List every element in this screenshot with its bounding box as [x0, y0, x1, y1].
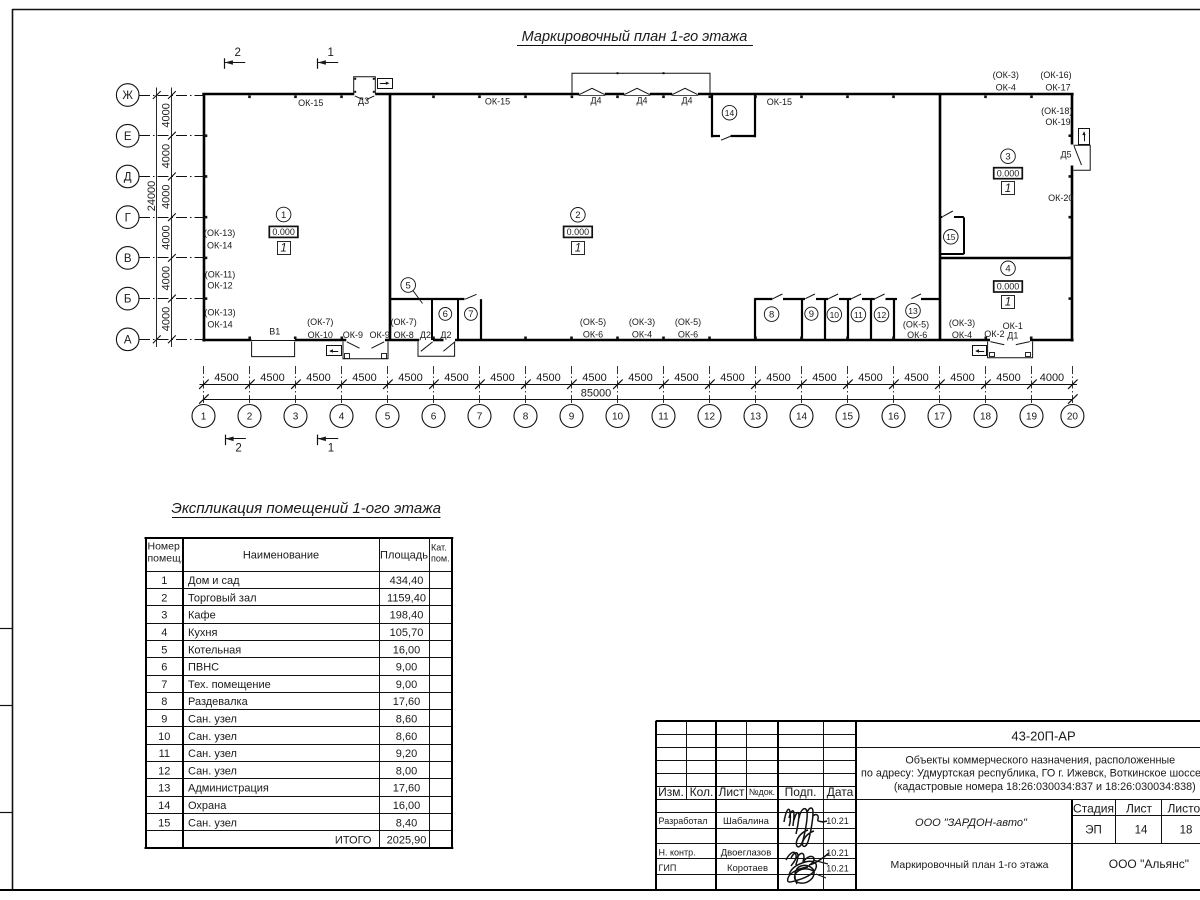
- svg-text:Д5: Д5: [1060, 149, 1071, 159]
- svg-text:14: 14: [796, 412, 808, 423]
- svg-text:1: 1: [327, 47, 333, 59]
- svg-text:8,40: 8,40: [396, 817, 417, 829]
- svg-text:Лист: Лист: [1126, 801, 1153, 815]
- svg-text:7: 7: [477, 412, 483, 423]
- svg-text:0.000: 0.000: [567, 227, 590, 237]
- svg-text:Разработал: Разработал: [659, 816, 708, 826]
- svg-text:ОК-14: ОК-14: [207, 240, 232, 250]
- svg-text:18: 18: [1180, 825, 1193, 837]
- svg-text:Маркировочный план 1-го этажа: Маркировочный план 1-го этажа: [891, 859, 1049, 871]
- svg-text:10.21: 10.21: [826, 848, 849, 858]
- svg-text:ОК-6: ОК-6: [678, 330, 698, 340]
- svg-text:17,60: 17,60: [393, 783, 421, 795]
- svg-text:10.21: 10.21: [826, 816, 849, 826]
- svg-text:ОК-8: ОК-8: [394, 330, 414, 340]
- svg-text:ГИП: ГИП: [659, 863, 677, 873]
- svg-text:17,60: 17,60: [393, 696, 421, 708]
- svg-text:9,00: 9,00: [396, 679, 417, 691]
- svg-text:(ОК-11): (ОК-11): [205, 270, 236, 280]
- svg-text:85000: 85000: [581, 387, 612, 399]
- svg-text:10: 10: [158, 731, 170, 743]
- svg-text:4: 4: [161, 627, 167, 639]
- svg-text:5: 5: [406, 280, 411, 291]
- svg-text:ОК-15: ОК-15: [767, 97, 792, 107]
- svg-text:ООО "Альянс": ООО "Альянс": [1109, 857, 1189, 871]
- svg-text:Маркировочный план 1-го этажа: Маркировочный план 1-го этажа: [522, 29, 748, 45]
- svg-text:помещ.: помещ.: [148, 553, 184, 565]
- svg-text:3: 3: [1005, 152, 1010, 163]
- svg-text:Администрация: Администрация: [188, 783, 269, 795]
- svg-text:Изм.: Изм.: [658, 785, 684, 799]
- svg-text:4500: 4500: [904, 372, 928, 384]
- svg-text:16: 16: [888, 412, 900, 423]
- svg-text:(ОК-18): (ОК-18): [1041, 106, 1072, 116]
- svg-text:4500: 4500: [812, 372, 836, 384]
- svg-text:4500: 4500: [490, 372, 514, 384]
- svg-text:Площадь: Площадь: [380, 550, 428, 562]
- svg-text:8,00: 8,00: [396, 765, 417, 777]
- svg-text:Номер: Номер: [148, 541, 180, 553]
- svg-text:Д3: Д3: [358, 96, 369, 106]
- svg-text:4500: 4500: [352, 372, 376, 384]
- svg-text:6: 6: [161, 662, 167, 674]
- svg-text:0.000: 0.000: [272, 227, 295, 237]
- svg-text:3: 3: [293, 412, 299, 423]
- svg-text:(кадастровые номера 18:26:0300: (кадастровые номера 18:26:030034:837 и 1…: [894, 781, 1196, 793]
- svg-text:ОК-15: ОК-15: [298, 98, 323, 108]
- svg-text:20: 20: [1067, 412, 1079, 423]
- svg-text:19: 19: [1026, 412, 1038, 423]
- svg-text:4500: 4500: [628, 372, 652, 384]
- svg-text:17: 17: [934, 412, 946, 423]
- svg-text:Б: Б: [124, 294, 132, 306]
- svg-text:9: 9: [569, 412, 575, 423]
- svg-text:9,20: 9,20: [396, 748, 417, 760]
- svg-text:13: 13: [750, 412, 762, 423]
- svg-text:7: 7: [468, 309, 473, 320]
- svg-text:ОК-12: ОК-12: [207, 281, 232, 291]
- svg-text:ОК-9: ОК-9: [343, 330, 363, 340]
- svg-text:Д2: Д2: [420, 330, 431, 340]
- svg-text:(ОК-7): (ОК-7): [307, 317, 333, 327]
- svg-text:ОК-6: ОК-6: [907, 330, 927, 340]
- svg-text:ООО "ЗАРДОН-авто": ООО "ЗАРДОН-авто": [915, 817, 1028, 829]
- svg-text:ПВНС: ПВНС: [188, 662, 219, 674]
- svg-text:4500: 4500: [536, 372, 560, 384]
- svg-text:Коротаев: Коротаев: [727, 863, 768, 874]
- svg-text:ОК-19: ОК-19: [1045, 117, 1070, 127]
- svg-text:ОК-4: ОК-4: [632, 330, 652, 340]
- svg-text:2: 2: [575, 210, 580, 221]
- svg-text:Г: Г: [125, 212, 132, 224]
- svg-text:15: 15: [158, 817, 170, 829]
- svg-text:1: 1: [280, 243, 286, 255]
- svg-text:Двоеглазов: Двоеглазов: [721, 847, 772, 858]
- svg-text:Сан. узел: Сан. узел: [188, 731, 237, 743]
- svg-text:198,40: 198,40: [390, 610, 424, 622]
- svg-text:14: 14: [1135, 825, 1148, 837]
- svg-text:Торговый зал: Торговый зал: [188, 592, 257, 604]
- svg-text:14: 14: [725, 108, 735, 118]
- svg-text:Кафе: Кафе: [188, 610, 216, 622]
- svg-text:7: 7: [161, 679, 167, 691]
- svg-text:1: 1: [281, 210, 286, 221]
- svg-text:Дом и сад: Дом и сад: [188, 575, 240, 587]
- svg-text:14: 14: [158, 800, 170, 812]
- svg-text:2: 2: [247, 412, 253, 423]
- svg-text:(ОК-5): (ОК-5): [580, 317, 606, 327]
- svg-text:1: 1: [328, 443, 334, 455]
- svg-text:В1: В1: [269, 327, 280, 337]
- svg-text:Д2: Д2: [440, 330, 451, 340]
- svg-text:10: 10: [612, 412, 624, 423]
- svg-text:15: 15: [946, 232, 956, 242]
- svg-text:11: 11: [854, 310, 863, 320]
- svg-text:1159,40: 1159,40: [387, 592, 426, 604]
- svg-text:15: 15: [842, 412, 854, 423]
- svg-text:(ОК-7): (ОК-7): [391, 317, 417, 327]
- svg-text:4500: 4500: [306, 372, 330, 384]
- svg-text:№док.: №док.: [749, 787, 775, 797]
- svg-text:4500: 4500: [996, 372, 1020, 384]
- svg-text:(ОК-13): (ОК-13): [204, 228, 235, 238]
- svg-text:8,60: 8,60: [396, 714, 417, 726]
- svg-text:(ОК-3): (ОК-3): [993, 70, 1019, 80]
- svg-text:4: 4: [339, 412, 345, 423]
- svg-text:Сан. узел: Сан. узел: [188, 714, 237, 726]
- svg-text:2: 2: [234, 47, 240, 59]
- svg-text:Тех. помещение: Тех. помещение: [188, 679, 271, 691]
- svg-text:Сан. узел: Сан. узел: [188, 765, 237, 777]
- svg-text:4500: 4500: [582, 372, 606, 384]
- svg-text:11: 11: [159, 748, 170, 760]
- svg-text:12: 12: [158, 765, 170, 777]
- svg-text:4000: 4000: [161, 103, 173, 127]
- svg-text:12: 12: [877, 310, 887, 320]
- svg-text:ОК-20: ОК-20: [1048, 193, 1073, 203]
- svg-text:6: 6: [443, 309, 448, 320]
- svg-text:Объекты коммерческого назначен: Объекты коммерческого назначения, распол…: [905, 754, 1175, 766]
- svg-text:Раздевалка: Раздевалка: [188, 696, 249, 708]
- svg-text:ОК-17: ОК-17: [1045, 82, 1070, 92]
- svg-text:5: 5: [385, 412, 391, 423]
- svg-text:ОК-2: ОК-2: [984, 329, 1004, 339]
- svg-text:ОК-15: ОК-15: [485, 97, 510, 107]
- svg-text:9: 9: [809, 309, 814, 320]
- svg-text:4500: 4500: [720, 372, 744, 384]
- svg-text:(ОК-3): (ОК-3): [629, 317, 655, 327]
- svg-text:Е: Е: [124, 131, 132, 143]
- svg-text:Охрана: Охрана: [188, 800, 227, 812]
- svg-text:11: 11: [658, 412, 669, 423]
- svg-text:Сан. узел: Сан. узел: [188, 748, 237, 760]
- svg-text:6: 6: [431, 412, 437, 423]
- svg-text:А: А: [124, 334, 132, 346]
- svg-text:24000: 24000: [146, 181, 158, 212]
- svg-text:16,00: 16,00: [393, 800, 421, 812]
- svg-text:4000: 4000: [161, 225, 173, 249]
- svg-text:5: 5: [161, 644, 167, 656]
- svg-text:4500: 4500: [398, 372, 422, 384]
- svg-text:Подп.: Подп.: [785, 785, 817, 799]
- svg-text:0.000: 0.000: [997, 168, 1020, 178]
- svg-text:4: 4: [1005, 264, 1010, 275]
- svg-text:4000: 4000: [161, 266, 173, 290]
- svg-text:4500: 4500: [950, 372, 974, 384]
- svg-text:13: 13: [158, 783, 170, 795]
- svg-text:10: 10: [830, 310, 840, 320]
- svg-text:ИТОГО: ИТОГО: [335, 835, 372, 847]
- svg-text:4500: 4500: [214, 372, 238, 384]
- svg-text:4500: 4500: [674, 372, 698, 384]
- svg-text:105,70: 105,70: [390, 627, 424, 639]
- svg-text:(ОК-5): (ОК-5): [903, 320, 929, 330]
- svg-text:12: 12: [704, 412, 716, 423]
- svg-text:Котельная: Котельная: [188, 644, 241, 656]
- svg-text:Экспликация помещений 1-ого эт: Экспликация помещений 1-ого этажа: [171, 500, 441, 517]
- svg-text:ЭП: ЭП: [1085, 825, 1102, 837]
- svg-text:Листов: Листов: [1168, 801, 1200, 815]
- svg-text:Д4: Д4: [636, 96, 647, 106]
- svg-text:1: 1: [1005, 183, 1011, 195]
- svg-text:1: 1: [575, 243, 581, 255]
- svg-text:9,00: 9,00: [396, 662, 417, 674]
- svg-text:(ОК-16): (ОК-16): [1040, 70, 1071, 80]
- svg-text:43-20П-АР: 43-20П-АР: [1011, 729, 1075, 744]
- svg-text:Шабалина: Шабалина: [723, 816, 770, 827]
- svg-text:1: 1: [161, 575, 167, 587]
- svg-text:Наименование: Наименование: [243, 550, 319, 562]
- svg-text:4500: 4500: [766, 372, 790, 384]
- svg-text:ОК-9: ОК-9: [369, 330, 389, 340]
- svg-text:пом.: пом.: [431, 554, 450, 564]
- svg-text:Сан. узел: Сан. узел: [188, 817, 237, 829]
- svg-text:434,40: 434,40: [390, 575, 424, 587]
- svg-text:9: 9: [161, 714, 167, 726]
- svg-text:13: 13: [908, 306, 918, 316]
- svg-text:8: 8: [769, 309, 774, 320]
- svg-text:ОК-6: ОК-6: [583, 330, 603, 340]
- svg-text:Кухня: Кухня: [188, 627, 217, 639]
- svg-text:4500: 4500: [260, 372, 284, 384]
- svg-text:Д: Д: [124, 172, 132, 184]
- svg-text:10.21: 10.21: [826, 864, 849, 874]
- svg-text:18: 18: [980, 412, 992, 423]
- svg-text:1: 1: [201, 412, 207, 423]
- svg-text:(ОК-13): (ОК-13): [204, 308, 235, 318]
- svg-text:В: В: [124, 253, 132, 265]
- svg-text:Д1: Д1: [1007, 330, 1018, 340]
- svg-text:ОК-14: ОК-14: [207, 320, 232, 330]
- svg-text:ОК-4: ОК-4: [952, 330, 972, 340]
- svg-text:Дата: Дата: [827, 785, 854, 799]
- svg-text:4000: 4000: [161, 185, 173, 209]
- svg-text:Лист: Лист: [718, 785, 745, 799]
- svg-text:8: 8: [161, 696, 167, 708]
- svg-text:4500: 4500: [444, 372, 468, 384]
- svg-text:Ж: Ж: [122, 90, 133, 102]
- svg-text:8: 8: [523, 412, 529, 423]
- svg-text:4000: 4000: [1040, 372, 1064, 384]
- svg-text:(ОК-5): (ОК-5): [675, 317, 701, 327]
- svg-text:Кол.: Кол.: [690, 785, 714, 799]
- svg-text:4000: 4000: [161, 144, 173, 168]
- svg-text:Кат.: Кат.: [431, 543, 447, 553]
- svg-text:ОК-4: ОК-4: [996, 82, 1016, 92]
- svg-text:4000: 4000: [161, 307, 173, 331]
- svg-text:Д4: Д4: [681, 96, 692, 106]
- svg-text:8,60: 8,60: [396, 731, 417, 743]
- svg-text:Д4: Д4: [590, 96, 601, 106]
- svg-text:по адресу: Удмуртская республи: по адресу: Удмуртская республика, ГО г. …: [861, 768, 1200, 780]
- svg-text:16,00: 16,00: [393, 644, 421, 656]
- svg-text:1: 1: [1005, 296, 1011, 308]
- svg-text:4500: 4500: [858, 372, 882, 384]
- svg-text:2: 2: [161, 592, 167, 604]
- svg-text:Н. контр.: Н. контр.: [659, 847, 696, 857]
- svg-text:ОК-10: ОК-10: [308, 330, 333, 340]
- svg-text:0.000: 0.000: [997, 282, 1020, 292]
- svg-text:(ОК-3): (ОК-3): [949, 318, 975, 328]
- svg-text:2025,90: 2025,90: [387, 835, 427, 847]
- svg-text:2: 2: [235, 443, 241, 455]
- svg-text:3: 3: [161, 610, 167, 622]
- svg-text:Стадия: Стадия: [1073, 801, 1114, 815]
